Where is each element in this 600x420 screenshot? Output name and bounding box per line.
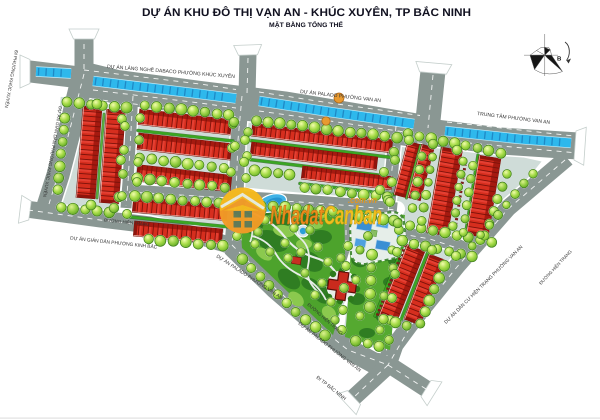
svg-text:B: B [557,56,562,63]
svg-text:.com.vn: .com.vn [348,195,377,205]
svg-text:DỰ ÁN KHU ĐÔ THỊ VẠN AN - KHÚC: DỰ ÁN KHU ĐÔ THỊ VẠN AN - KHÚC XUYÊN, TP… [142,6,471,19]
svg-text:MẶT BẰNG TỔNG THỂ: MẶT BẰNG TỔNG THỂ [269,21,344,29]
